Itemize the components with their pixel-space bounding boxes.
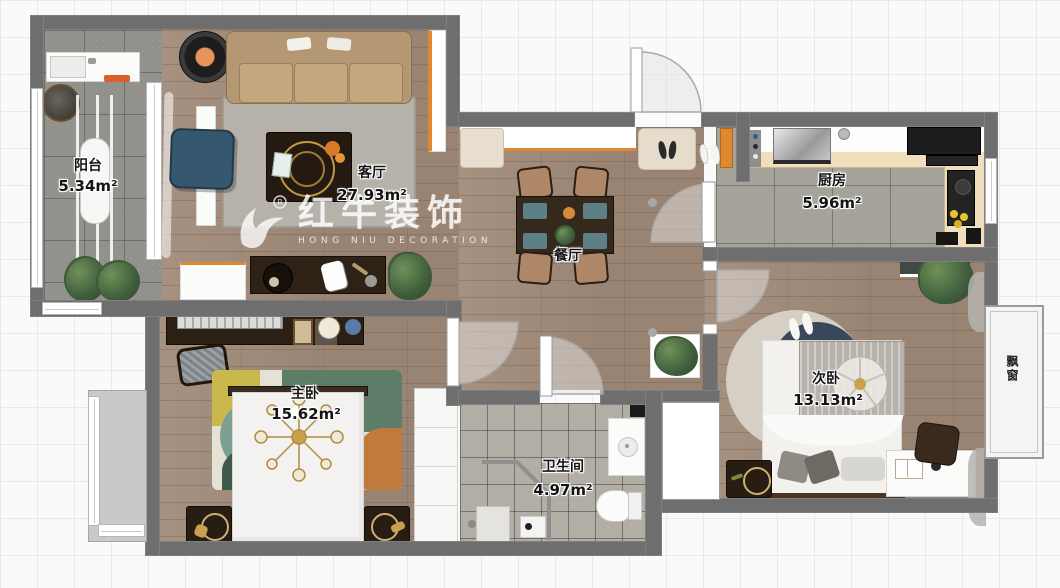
shoes — [668, 141, 677, 160]
balcony-potted-bush — [42, 84, 80, 122]
burner — [955, 179, 971, 195]
photo-frame — [293, 319, 313, 345]
wall-main-bottom — [145, 541, 662, 556]
bath-caddy — [520, 516, 546, 538]
balcony-faucet — [88, 58, 96, 64]
knob — [753, 134, 758, 139]
nightstand — [726, 460, 772, 498]
sofa-cushion — [239, 63, 293, 103]
book — [272, 152, 293, 178]
bath-vanity — [608, 418, 645, 476]
room-area-master: 15.62m² — [264, 405, 348, 423]
range-hood — [773, 128, 831, 164]
deco-plate — [318, 317, 340, 339]
low-cabinet — [180, 262, 246, 300]
room-label-kitchen: 厨房 — [802, 170, 862, 190]
second-bed — [762, 340, 902, 498]
kitchen-box — [936, 232, 958, 245]
sofa — [226, 31, 412, 104]
entry-door-leaf — [631, 48, 642, 112]
basin-drain — [625, 444, 629, 448]
kitchen-right-window — [985, 158, 997, 224]
tray-dish — [269, 277, 279, 287]
balcony-orange-item — [104, 75, 130, 82]
sofa-cushion — [349, 63, 403, 103]
room-area-bath: 4.97m² — [528, 481, 598, 499]
radiator — [177, 316, 283, 329]
cooktop — [947, 170, 975, 226]
entry-tall-cabinet — [428, 30, 446, 152]
wall-bath-right — [645, 390, 662, 556]
sprig — [731, 473, 744, 481]
room-area-balcony: 5.34m² — [50, 177, 126, 195]
wall-master-door-upper — [446, 300, 462, 322]
bay-window: 飘窗 — [984, 305, 1044, 459]
shower-tray — [476, 506, 510, 542]
nightstand — [186, 506, 232, 544]
master-bay-window-bottom — [98, 524, 145, 537]
wall-hall-top — [458, 112, 635, 127]
wall-bed2-west-upper — [702, 247, 718, 268]
placemat — [583, 203, 607, 219]
room-label-living: 客厅 — [342, 162, 402, 182]
sofa-pillow — [286, 37, 311, 51]
open-book — [895, 459, 923, 479]
wood-spoon — [351, 262, 368, 276]
caddy-dot — [525, 523, 532, 530]
room-label-master: 主卧 — [275, 383, 335, 403]
toilet — [596, 490, 630, 522]
fridge-lower — [926, 155, 978, 166]
media-console — [250, 256, 386, 294]
master-bay-window — [88, 396, 100, 526]
knob — [753, 154, 758, 159]
lounge-chair — [169, 128, 235, 190]
room-label-bath: 卫生间 — [528, 456, 598, 476]
lemons — [950, 210, 958, 218]
nightstand-deco — [743, 467, 771, 495]
room-area-kitchen: 5.96m² — [794, 194, 870, 212]
utility-shaft — [662, 402, 720, 500]
sofa-pillow — [327, 37, 352, 51]
room-area-second: 13.13m² — [786, 391, 870, 409]
room-label-second: 次卧 — [796, 368, 856, 388]
room-area-living: 27.93m² — [330, 186, 414, 204]
deco-plate-blue — [345, 319, 361, 335]
balcony-left-window — [31, 88, 43, 288]
gray-dot — [365, 275, 377, 287]
pillow — [803, 449, 840, 485]
food-bowl — [563, 207, 575, 219]
fridge — [907, 127, 981, 155]
knob — [753, 144, 758, 149]
wardrobe — [414, 388, 458, 546]
wall-kitchen-west — [736, 112, 750, 182]
room-label-dining: 餐厅 — [538, 245, 598, 265]
gold-tray-inner — [289, 151, 325, 187]
balcony-plant — [96, 260, 140, 302]
shoes — [657, 140, 668, 159]
wall-master-left — [145, 300, 160, 556]
bay-window-label: 飘窗 — [1004, 355, 1021, 383]
door-stop — [648, 328, 657, 337]
balcony-bottom-window — [42, 302, 102, 315]
round-side-table — [179, 31, 231, 83]
pillow — [841, 457, 885, 481]
sink-doodle — [838, 128, 850, 140]
door-stop — [648, 198, 657, 207]
kitchen-orange-cabinet — [720, 128, 733, 168]
duvet-fold — [763, 415, 903, 445]
wall-bed2-west-lower — [702, 330, 718, 398]
wall-bath-top-left — [458, 390, 540, 405]
wall-shaft-top — [662, 390, 720, 402]
door-mat — [638, 128, 696, 170]
wall-kitchen-bottom — [702, 247, 998, 262]
sofa-cushion — [294, 63, 348, 103]
toilet-tank — [628, 492, 642, 520]
entry-door-arc — [641, 52, 701, 112]
floor-drain — [468, 520, 476, 528]
balcony-living-window — [146, 82, 162, 260]
wall-top-left — [30, 15, 460, 30]
wall-step — [446, 15, 460, 127]
placemat — [523, 203, 547, 219]
kitchen-knob-panel — [750, 130, 761, 167]
nightstand — [364, 506, 410, 544]
room-label-balcony: 阳台 — [58, 155, 118, 175]
white-gadget — [320, 260, 348, 292]
living-plant — [388, 252, 432, 300]
kitchen-box — [966, 228, 981, 244]
entry-mat — [460, 128, 504, 168]
desk-chair — [913, 421, 960, 466]
floor-plan: 飘窗 — [0, 0, 1060, 588]
balcony-sink-basin — [50, 56, 86, 78]
table-plant — [555, 225, 575, 245]
corridor-plant — [654, 336, 698, 376]
wall-bed2-bottom — [645, 498, 998, 513]
book-spine — [907, 459, 908, 477]
